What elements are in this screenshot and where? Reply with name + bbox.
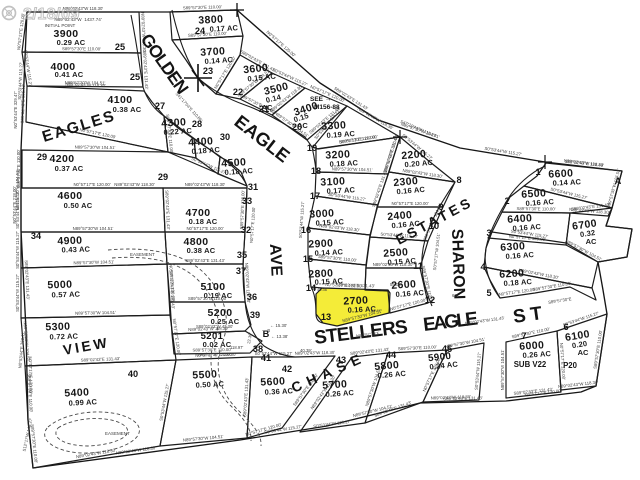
- svg-text:29: 29: [37, 152, 47, 162]
- svg-text:S0°53'44"W 115.27': S0°53'44"W 115.27': [15, 231, 20, 269]
- svg-text:35: 35: [237, 250, 247, 260]
- svg-text:N89°57'30"W 104.51': N89°57'30"W 104.51': [75, 310, 116, 316]
- svg-text:N0°57'17"E 120.00': N0°57'17"E 120.00': [186, 226, 223, 231]
- svg-text:118.97': 118.97': [230, 345, 243, 350]
- svg-text:0.18 AC: 0.18 AC: [329, 158, 358, 169]
- svg-text:SHARON: SHARON: [448, 229, 468, 302]
- svg-text:0.29 AC: 0.29 AC: [57, 38, 86, 47]
- svg-text:0.17 AC: 0.17 AC: [209, 23, 238, 34]
- svg-text:AC: AC: [297, 121, 308, 130]
- svg-text:0.18 AC: 0.18 AC: [189, 217, 218, 226]
- svg-text:40: 40: [128, 369, 138, 379]
- svg-text:A: A: [615, 176, 622, 186]
- svg-text:0.38 AC: 0.38 AC: [187, 246, 216, 255]
- svg-text:2/18/09: 2/18/09: [23, 6, 80, 23]
- svg-text:EASEMENT: EASEMENT: [105, 431, 130, 436]
- svg-text:N89°02'43"W 118.30': N89°02'43"W 118.30': [114, 182, 155, 187]
- svg-text:0.41 AC: 0.41 AC: [55, 70, 84, 79]
- svg-text:N89°02'43"W 118.30': N89°02'43"W 118.30': [185, 182, 226, 187]
- svg-text:45.36: 45.36: [317, 287, 328, 292]
- svg-text:N89°57'30"W 104.51': N89°57'30"W 104.51': [75, 145, 116, 151]
- svg-text:AC: AC: [262, 103, 273, 112]
- svg-text:40.39': 40.39': [300, 348, 312, 353]
- svg-text:S89°02'43"W 43.30': S89°02'43"W 43.30': [196, 324, 233, 329]
- svg-text:0.36 AC: 0.36 AC: [264, 386, 293, 397]
- svg-text:8: 8: [456, 175, 461, 185]
- svg-text:N0°53'44"E 218.00': N0°53'44"E 218.00': [12, 186, 17, 223]
- svg-text:N89°57'30"W 104.51': N89°57'30"W 104.51': [73, 226, 114, 231]
- svg-text:N89°57'30"E 110.00': N89°57'30"E 110.00': [198, 352, 236, 357]
- svg-text:EASEMENT: EASEMENT: [130, 252, 155, 257]
- svg-text:31: 31: [248, 182, 258, 192]
- svg-text:0.02 AC: 0.02 AC: [203, 340, 232, 349]
- svg-text:13: 13: [321, 312, 331, 322]
- svg-text:0.14 AC: 0.14 AC: [552, 177, 581, 188]
- svg-text:← 15.30': ← 15.30': [270, 323, 287, 328]
- svg-text:0.50 AC: 0.50 AC: [64, 201, 93, 210]
- svg-text:42: 42: [282, 364, 292, 374]
- svg-text:0.14 AC: 0.14 AC: [314, 247, 343, 258]
- svg-text:0.17 AC: 0.17 AC: [326, 185, 355, 196]
- svg-text:44: 44: [386, 350, 397, 360]
- svg-text:55.00': 55.00': [390, 282, 402, 287]
- svg-text:30: 30: [220, 132, 230, 142]
- svg-text:P20: P20: [563, 361, 578, 370]
- svg-text:— B: — B: [262, 328, 270, 333]
- svg-text:N0°53'44"E 329.47': N0°53'44"E 329.47': [13, 91, 18, 128]
- svg-text:6: 6: [563, 322, 568, 332]
- svg-text:60': 60': [452, 293, 458, 298]
- svg-text:41: 41: [261, 353, 271, 363]
- svg-text:S0°53'44"W 115.27': S0°53'44"W 115.27': [15, 274, 20, 312]
- svg-text:81.87': 81.87': [371, 308, 382, 313]
- svg-text:0.57 AC: 0.57 AC: [51, 289, 80, 299]
- svg-text:0.37 AC: 0.37 AC: [55, 164, 84, 173]
- svg-text:S89°57'30"E 110.00': S89°57'30"E 110.00': [16, 149, 21, 188]
- svg-text:0.99 AC: 0.99 AC: [68, 397, 97, 408]
- svg-text:N0°57'17"E 120.00': N0°57'17"E 120.00': [391, 201, 428, 206]
- svg-text:25: 25: [115, 42, 125, 52]
- svg-text:SUB V22: SUB V22: [514, 360, 547, 369]
- svg-text:45: 45: [442, 344, 452, 354]
- svg-text:AC: AC: [586, 237, 597, 246]
- svg-text:S89°02'43"E 131.43': S89°02'43"E 131.43': [185, 258, 224, 263]
- svg-text:N89°57'30"W 104.51': N89°57'30"W 104.51': [500, 349, 505, 390]
- svg-text:← 13.38': ← 13.38': [271, 334, 288, 339]
- svg-text:29: 29: [158, 172, 168, 182]
- svg-text:7: 7: [521, 331, 526, 341]
- svg-text:0.38 AC: 0.38 AC: [113, 105, 142, 114]
- svg-text:SEE →: SEE →: [310, 96, 331, 103]
- svg-text:23: 23: [203, 66, 213, 76]
- svg-text:5: 5: [486, 288, 491, 298]
- svg-text:39: 39: [250, 310, 260, 320]
- svg-text:0.43 AC: 0.43 AC: [61, 244, 90, 254]
- svg-text:37: 37: [236, 266, 246, 276]
- svg-text:24: 24: [195, 26, 206, 36]
- svg-text:AC: AC: [578, 348, 589, 357]
- svg-text:25: 25: [130, 72, 140, 82]
- svg-text:0.15 AC: 0.15 AC: [315, 217, 344, 228]
- svg-text:AVE: AVE: [266, 243, 285, 278]
- svg-text:36: 36: [247, 292, 257, 302]
- svg-text:N0°57'17"E 120.00': N0°57'17"E 120.00': [73, 182, 110, 187]
- svg-text:0.19 AC: 0.19 AC: [204, 291, 233, 300]
